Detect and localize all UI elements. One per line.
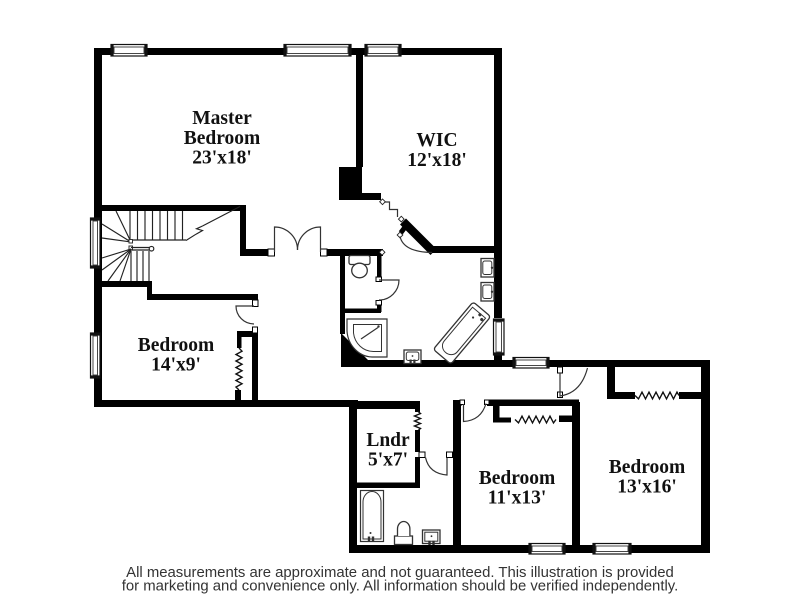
svg-text:Bedroom: Bedroom [479,468,556,489]
svg-text:5'x7': 5'x7' [368,450,408,471]
svg-text:14'x9': 14'x9' [151,355,201,376]
svg-text:11'x13': 11'x13' [488,488,547,509]
svg-text:12'x18': 12'x18' [407,150,467,171]
svg-text:Bedroom: Bedroom [138,335,215,356]
svg-text:Lndr: Lndr [366,430,410,451]
svg-text:for marketing and convenience: for marketing and convenience only. All … [122,579,679,595]
svg-text:13'x16': 13'x16' [617,477,677,498]
svg-text:Master: Master [192,108,252,129]
svg-text:23'x18': 23'x18' [192,148,252,169]
svg-text:Bedroom: Bedroom [184,128,261,149]
svg-text:Bedroom: Bedroom [609,457,686,478]
svg-text:WIC: WIC [416,130,457,151]
